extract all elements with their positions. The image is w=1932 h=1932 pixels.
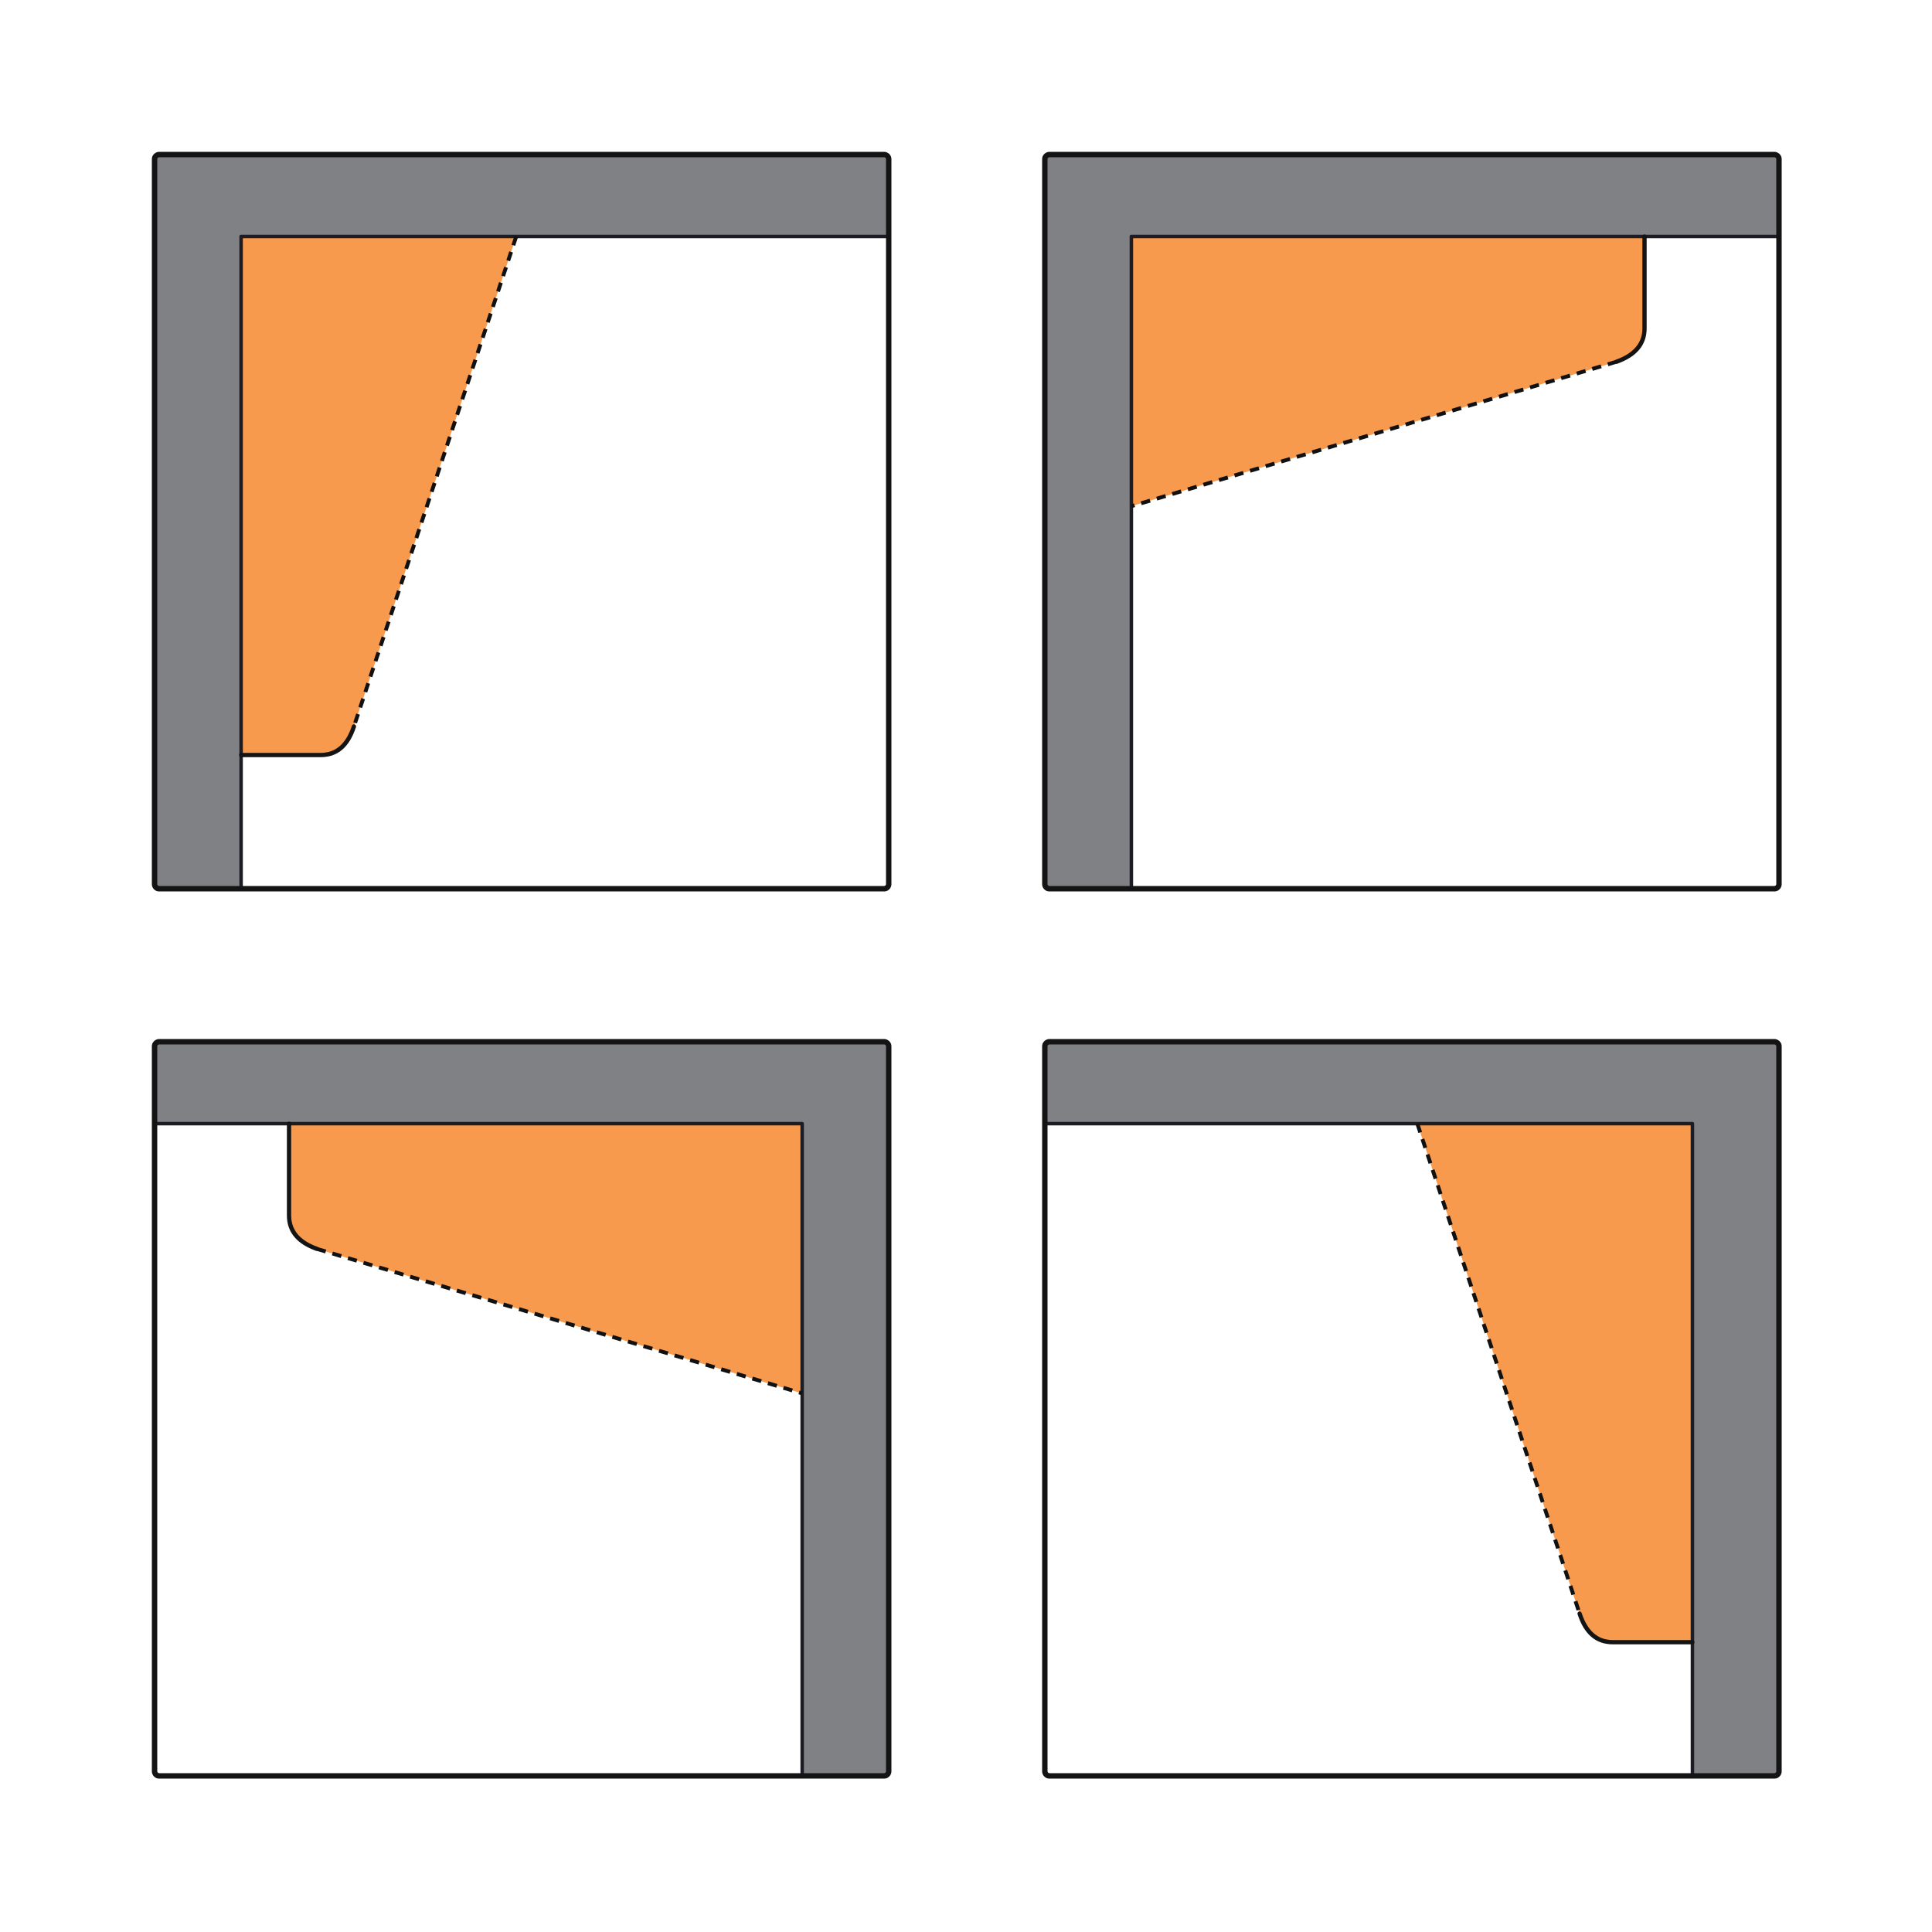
panel-bottom-left xyxy=(155,1042,889,1776)
shaded-region xyxy=(241,236,516,755)
shaded-region xyxy=(1417,1124,1692,1642)
panel-bottom-right xyxy=(1045,1042,1779,1776)
corner-shading-diagram xyxy=(0,0,1932,1932)
shaded-region xyxy=(1131,236,1645,506)
shaded-region xyxy=(289,1124,802,1393)
panel-top-left xyxy=(155,155,889,889)
panel-top-right xyxy=(1045,155,1779,889)
